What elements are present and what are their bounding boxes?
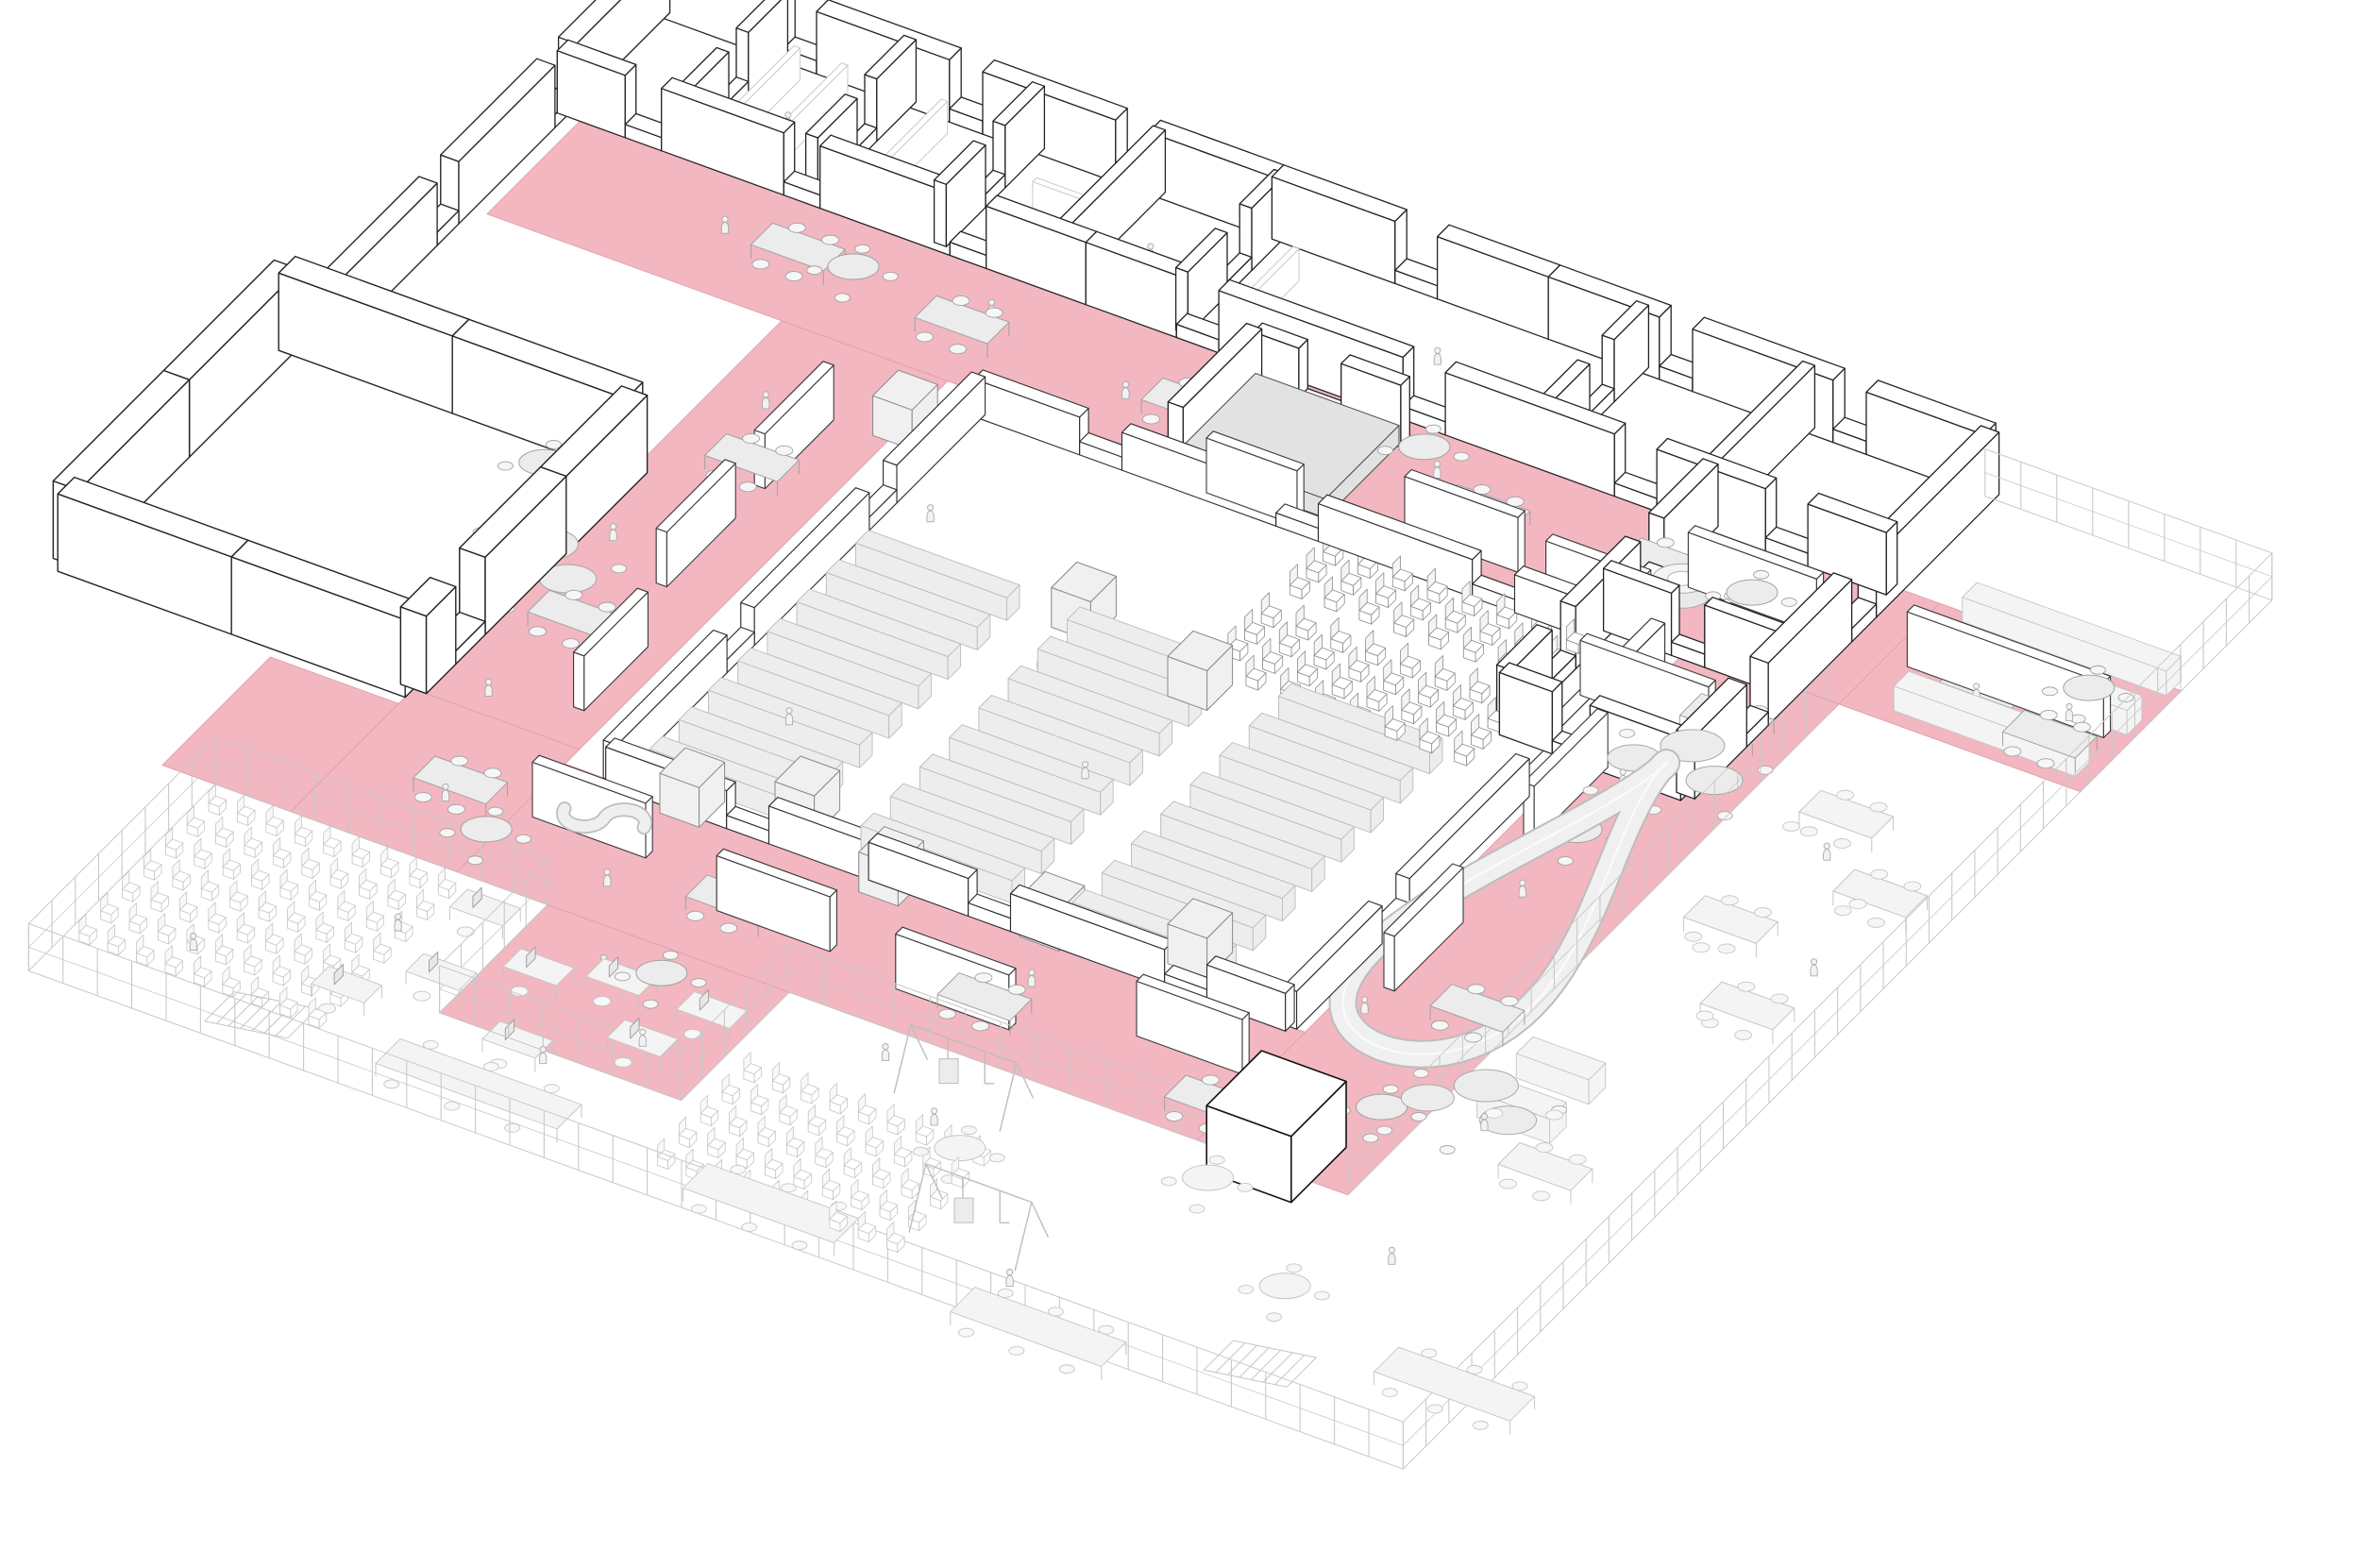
deck-chair xyxy=(772,1063,790,1093)
deck-chair xyxy=(766,1148,784,1178)
deck-chair xyxy=(216,817,234,847)
deck-chair xyxy=(309,998,327,1028)
deck-chair xyxy=(708,1127,726,1157)
deck-chair xyxy=(657,1138,675,1169)
annex-wall xyxy=(58,478,248,634)
deck-chair xyxy=(410,857,428,887)
person-figure xyxy=(395,914,401,931)
audience-chair xyxy=(1400,643,1420,678)
deck-chair xyxy=(736,1138,754,1168)
deck-chair xyxy=(873,1158,890,1189)
deck-chair xyxy=(101,893,119,923)
wall xyxy=(1438,225,1560,339)
person-figure xyxy=(639,1029,646,1046)
deck-chair xyxy=(786,1126,803,1156)
deck-chair xyxy=(744,1053,762,1083)
deck-chair xyxy=(302,848,320,878)
deck-chair xyxy=(123,871,141,902)
deck-chair xyxy=(194,956,211,986)
deck-chair xyxy=(880,1189,898,1220)
deck-chair xyxy=(209,902,227,933)
deck-chair xyxy=(366,901,383,931)
deck-round-table xyxy=(1239,1264,1330,1322)
deck-chair xyxy=(129,903,147,934)
deck-chair xyxy=(137,936,155,966)
deck-chair xyxy=(295,934,312,964)
deck-chair xyxy=(179,892,197,922)
audience-chair xyxy=(1261,593,1281,628)
deck-chair xyxy=(438,868,456,898)
axonometric-floor-plan xyxy=(0,0,2360,1568)
deck-chair xyxy=(360,868,378,899)
deck-chair xyxy=(381,847,399,877)
deck-chair xyxy=(165,828,182,858)
deck-chair xyxy=(201,870,219,901)
deck-table xyxy=(1799,790,1894,852)
person-figure xyxy=(785,708,792,725)
deck-chair xyxy=(866,1126,884,1156)
person-figure xyxy=(610,524,616,541)
deck-chair xyxy=(730,1105,747,1136)
person-figure xyxy=(1082,762,1088,779)
deck-chair xyxy=(266,923,284,953)
deck-table xyxy=(1700,982,1795,1044)
deck-chair xyxy=(209,784,227,815)
person-figure xyxy=(442,784,448,801)
deck-chair xyxy=(173,860,191,890)
deck-chair xyxy=(352,836,370,867)
deck-chair xyxy=(252,859,269,889)
deck-chair xyxy=(780,1095,798,1125)
deck-stool xyxy=(1849,900,1866,909)
deck-chair xyxy=(244,827,262,857)
deck-chair xyxy=(851,1179,869,1209)
deck-chair xyxy=(238,795,256,825)
deck-chair xyxy=(816,1137,833,1167)
deck-chair xyxy=(859,1094,877,1124)
deck-chair xyxy=(194,838,211,868)
person-figure xyxy=(927,505,934,522)
deck-chair xyxy=(758,1116,775,1146)
person-figure xyxy=(1823,843,1829,860)
person-figure xyxy=(1434,347,1441,364)
deck-chair xyxy=(309,880,326,910)
floor-plan-figure xyxy=(0,0,2360,1568)
deck-chair xyxy=(416,889,434,919)
deck-chair xyxy=(887,1104,905,1135)
deck-chair xyxy=(187,806,205,836)
person-figure xyxy=(882,1044,888,1061)
swing-frame xyxy=(909,1164,1048,1271)
deck-chair xyxy=(679,1117,697,1147)
deck-chair xyxy=(266,805,284,835)
deck-chair xyxy=(151,882,169,912)
person-figure xyxy=(1434,461,1441,478)
deck-chair xyxy=(280,869,297,900)
deck-table xyxy=(1498,1143,1593,1206)
person-figure xyxy=(1028,969,1035,986)
desk-with-monitor xyxy=(312,965,382,1017)
wall xyxy=(935,141,986,246)
person-figure xyxy=(539,1047,546,1064)
deck-chair xyxy=(374,933,392,963)
deck-stool xyxy=(1783,821,1800,831)
deck-chair xyxy=(330,858,348,888)
deck-chair xyxy=(750,1085,768,1115)
deck-chair xyxy=(165,946,183,976)
deck-stool xyxy=(1486,1108,1503,1118)
deck-chair xyxy=(259,891,277,921)
audience-chair xyxy=(1470,668,1490,703)
deck-chair xyxy=(794,1158,812,1189)
person-figure xyxy=(1519,880,1526,897)
deck-stool xyxy=(1545,1110,1562,1120)
person-figure xyxy=(1811,959,1817,976)
deck-chair xyxy=(801,1073,819,1104)
person-figure xyxy=(1481,1114,1488,1131)
deck-chair xyxy=(894,1137,912,1167)
deck-chair xyxy=(108,925,126,955)
person-figure xyxy=(1389,1247,1395,1264)
deck-stool xyxy=(1693,943,1710,953)
deck-chair xyxy=(144,850,162,880)
deck-chair xyxy=(316,912,334,942)
person-figure xyxy=(1006,1270,1013,1287)
deck-chair xyxy=(273,837,291,868)
deck-chair xyxy=(902,1169,919,1199)
person-figure xyxy=(603,869,610,886)
person-figure xyxy=(2065,703,2072,720)
person-figure xyxy=(1361,997,1368,1014)
person-figure xyxy=(721,216,728,233)
audience-chair xyxy=(1366,631,1386,666)
deck-chair xyxy=(952,1157,969,1188)
deck-chair xyxy=(159,914,177,944)
long-table xyxy=(951,1288,1126,1380)
audience-chair xyxy=(1296,605,1316,640)
deck-chair xyxy=(223,849,240,879)
deck-chair xyxy=(288,902,306,932)
person-figure xyxy=(762,392,768,409)
deck-chair xyxy=(345,922,362,953)
deck-chair xyxy=(338,890,355,920)
deck-table xyxy=(1833,869,1928,932)
deck-chair xyxy=(244,945,262,975)
deck-chair xyxy=(280,987,298,1018)
person-figure xyxy=(1122,381,1129,398)
person-figure xyxy=(190,934,196,951)
deck-chair xyxy=(273,955,291,986)
deck-chair xyxy=(822,1169,840,1199)
deck-chair xyxy=(722,1074,740,1104)
deck-chair xyxy=(237,913,255,943)
deck-chair xyxy=(388,879,406,909)
deck-chair xyxy=(215,935,233,965)
deck-chair xyxy=(858,1211,876,1241)
deck-stool xyxy=(1696,1011,1713,1020)
deck-chair xyxy=(887,1222,905,1252)
staircase xyxy=(1204,1340,1316,1387)
deck-chair xyxy=(79,915,97,945)
deck-chair xyxy=(837,1116,855,1146)
deck-chair xyxy=(324,826,342,856)
deck-chair xyxy=(808,1105,826,1136)
person-figure xyxy=(931,1108,937,1125)
person-figure xyxy=(485,679,492,696)
deck-chair xyxy=(830,1084,848,1114)
deck-chair xyxy=(295,816,312,846)
deck-chair xyxy=(700,1095,717,1125)
fence xyxy=(1985,449,2272,600)
deck-chair xyxy=(230,881,248,911)
deck-chair xyxy=(844,1148,861,1178)
audience-chair xyxy=(1331,617,1351,652)
long-table xyxy=(1374,1347,1535,1434)
audience-chair xyxy=(1435,655,1455,690)
